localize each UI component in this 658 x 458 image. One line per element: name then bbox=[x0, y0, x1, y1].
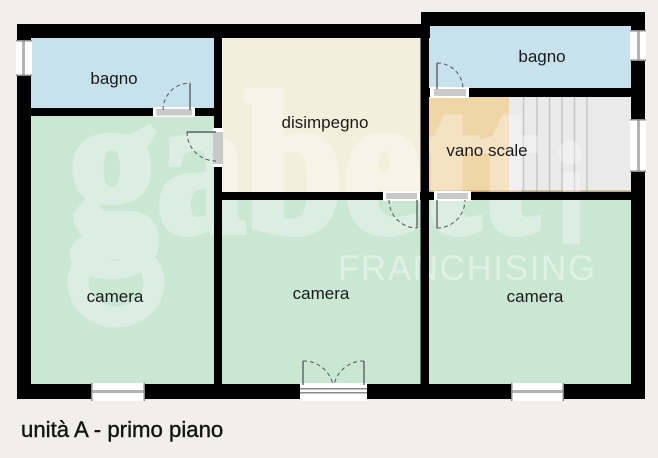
svg-text:gabett: gabett bbox=[69, 53, 538, 276]
svg-text:vano scale: vano scale bbox=[446, 141, 527, 160]
svg-text:FRANCHISING: FRANCHISING bbox=[338, 249, 597, 288]
svg-text:camera: camera bbox=[293, 284, 350, 303]
svg-text:camera: camera bbox=[87, 287, 144, 306]
svg-text:disimpegno: disimpegno bbox=[282, 113, 369, 132]
svg-text:bagno: bagno bbox=[518, 47, 565, 66]
svg-text:unità A - primo piano: unità A - primo piano bbox=[21, 417, 223, 442]
svg-text:camera: camera bbox=[507, 287, 564, 306]
svg-text:bagno: bagno bbox=[90, 69, 137, 88]
